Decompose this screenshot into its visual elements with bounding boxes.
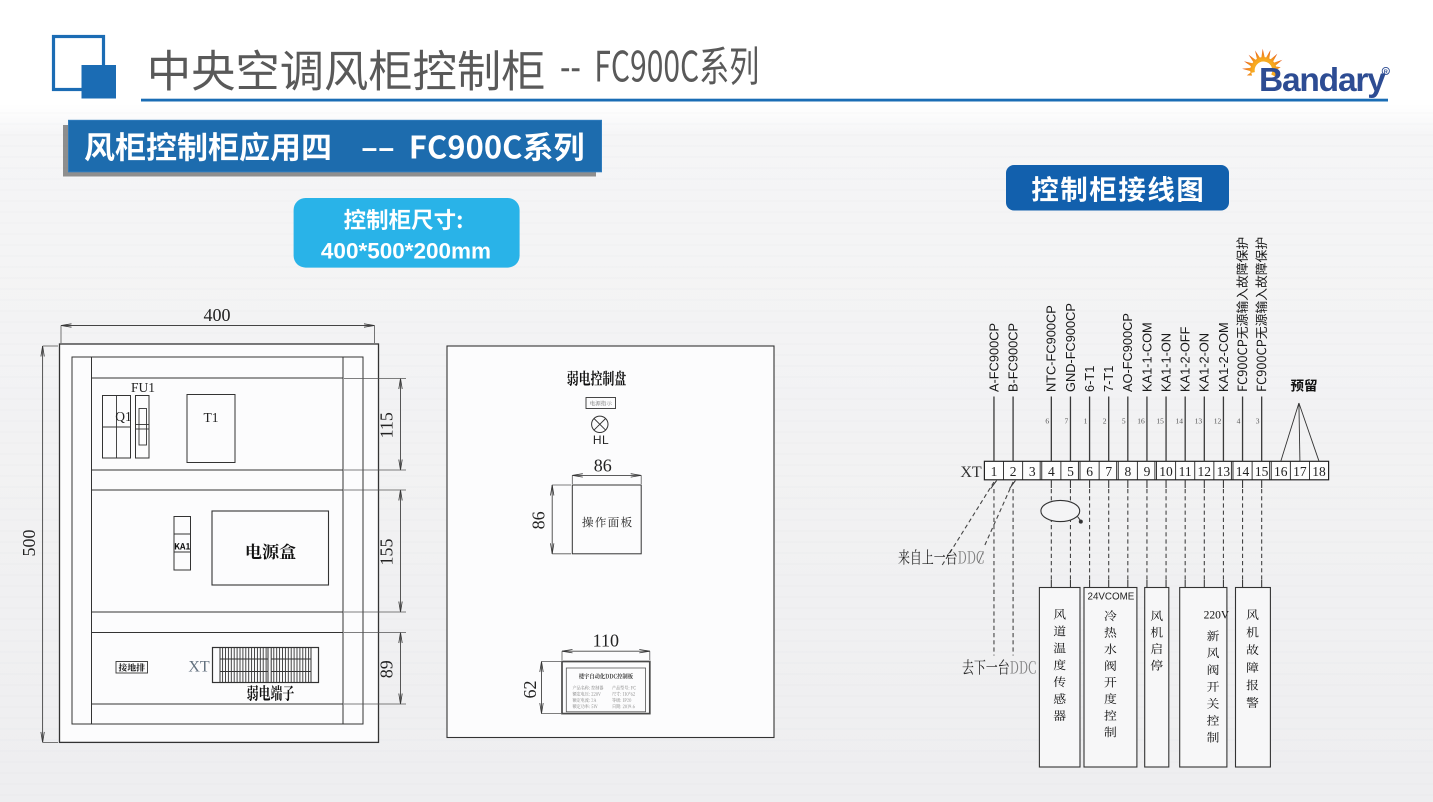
- svg-text:220V: 220V: [1204, 610, 1230, 622]
- svg-text:7: 7: [1065, 416, 1069, 425]
- svg-text:A-FC900CP: A-FC900CP: [986, 323, 1001, 392]
- svg-text:2: 2: [1010, 464, 1017, 479]
- svg-text:Bandary: Bandary: [1259, 62, 1386, 99]
- svg-text:KA1-1-ON: KA1-1-ON: [1159, 333, 1174, 392]
- svg-text:NTC-FC900CP: NTC-FC900CP: [1044, 305, 1059, 392]
- svg-text:4: 4: [1048, 464, 1055, 479]
- svg-text:12: 12: [1198, 464, 1212, 479]
- svg-text:2: 2: [1103, 416, 1107, 425]
- svg-text:AO-FC900CP: AO-FC900CP: [1120, 313, 1135, 392]
- svg-text:400: 400: [204, 305, 231, 325]
- svg-text:6-T1: 6-T1: [1082, 366, 1097, 392]
- svg-text:5: 5: [1122, 416, 1126, 425]
- svg-text:16: 16: [1137, 416, 1145, 425]
- svg-text:9: 9: [1144, 464, 1151, 479]
- svg-text:15: 15: [1255, 464, 1269, 479]
- svg-text:155: 155: [377, 539, 397, 566]
- svg-text:R: R: [1384, 69, 1388, 75]
- svg-text:7-T1: 7-T1: [1101, 366, 1116, 392]
- svg-text:XT: XT: [188, 659, 210, 676]
- svg-text:8: 8: [1124, 464, 1131, 479]
- svg-text:6: 6: [1086, 464, 1093, 479]
- svg-text:B-FC900CP: B-FC900CP: [1006, 323, 1021, 392]
- svg-text:62: 62: [520, 681, 540, 699]
- svg-text:KA1-2-COM: KA1-2-COM: [1216, 322, 1231, 392]
- svg-text:16: 16: [1274, 464, 1288, 479]
- svg-text:14: 14: [1175, 416, 1183, 425]
- svg-text:10: 10: [1159, 464, 1173, 479]
- svg-text:1: 1: [991, 464, 998, 479]
- svg-text:15: 15: [1156, 416, 1164, 425]
- svg-text:FU1: FU1: [131, 380, 155, 395]
- svg-text:24VCOME: 24VCOME: [1088, 591, 1135, 602]
- svg-text:11: 11: [1179, 464, 1192, 479]
- svg-text:110: 110: [593, 631, 619, 651]
- svg-text:KA1-1-COM: KA1-1-COM: [1139, 322, 1154, 392]
- svg-text:17: 17: [1293, 464, 1307, 479]
- svg-text:6: 6: [1045, 416, 1049, 425]
- svg-text:KA1-2-OFF: KA1-2-OFF: [1178, 326, 1193, 392]
- svg-text:3: 3: [1256, 416, 1260, 425]
- svg-text:4: 4: [1237, 416, 1241, 425]
- svg-text:115: 115: [377, 412, 397, 438]
- svg-text:13: 13: [1195, 416, 1203, 425]
- svg-text:T1: T1: [204, 410, 219, 425]
- svg-text:7: 7: [1105, 464, 1112, 479]
- svg-text:GND-FC900CP: GND-FC900CP: [1063, 303, 1078, 392]
- svg-text:400*500*200mm: 400*500*200mm: [321, 239, 491, 264]
- svg-text:HL: HL: [593, 433, 609, 447]
- svg-text:KA1-2-ON: KA1-2-ON: [1197, 333, 1212, 392]
- svg-text:Q1: Q1: [115, 409, 132, 424]
- svg-text:500: 500: [19, 530, 39, 557]
- svg-text:XT: XT: [960, 464, 982, 481]
- svg-text:86: 86: [594, 456, 612, 476]
- svg-text:86: 86: [529, 511, 549, 529]
- svg-text:12: 12: [1214, 416, 1222, 425]
- svg-text:18: 18: [1312, 464, 1326, 479]
- svg-text:5: 5: [1067, 464, 1074, 479]
- svg-text:14: 14: [1236, 464, 1250, 479]
- svg-text:1: 1: [1084, 416, 1088, 425]
- svg-text:13: 13: [1217, 464, 1231, 479]
- svg-text:3: 3: [1029, 464, 1036, 479]
- svg-text:89: 89: [377, 660, 397, 678]
